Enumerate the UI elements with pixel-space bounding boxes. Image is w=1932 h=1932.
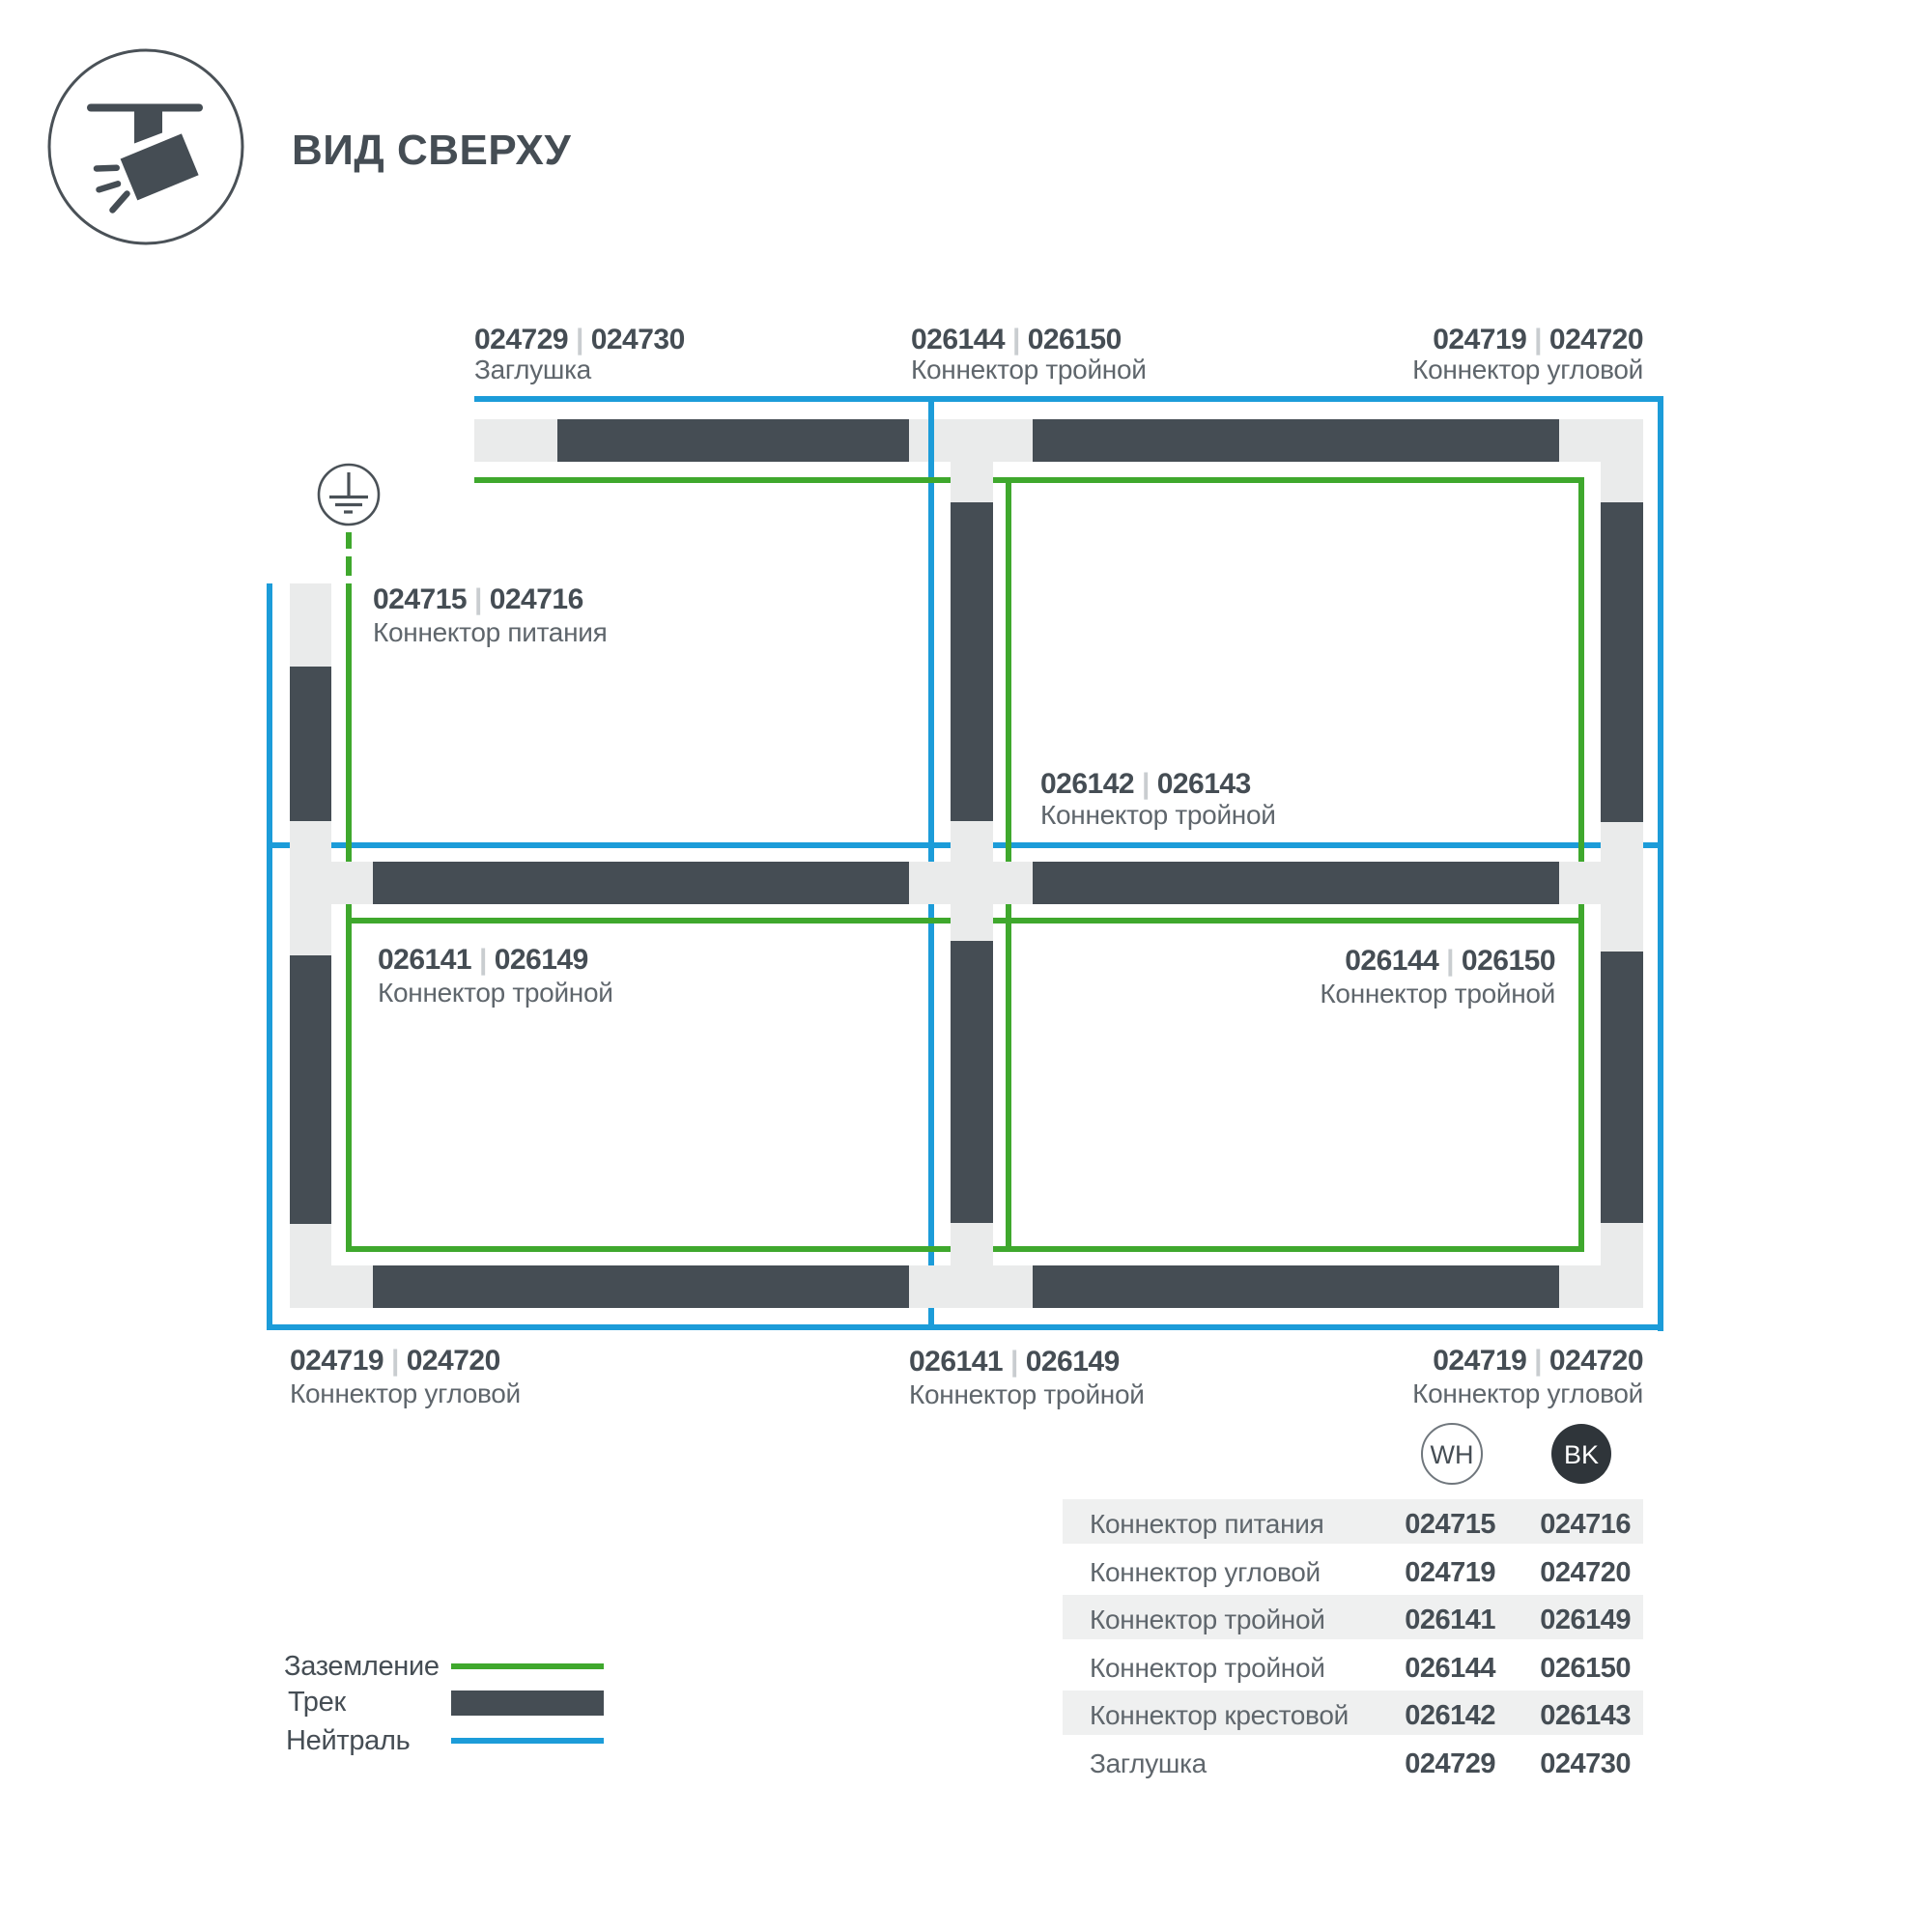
svg-text:Заглушка: Заглушка (474, 355, 592, 384)
svg-text:Коннектор угловой: Коннектор угловой (290, 1378, 521, 1408)
svg-text:Коннектор угловой: Коннектор угловой (1090, 1557, 1321, 1587)
svg-text:024729 | 024730: 024729 | 024730 (474, 324, 685, 355)
svg-text:Коннектор угловой: Коннектор угловой (1412, 355, 1643, 384)
svg-text:Коннектор тройной: Коннектор тройной (1040, 800, 1276, 830)
svg-text:024719 | 024720: 024719 | 024720 (290, 1345, 500, 1377)
svg-text:Заземление: Заземление (284, 1651, 440, 1682)
svg-text:WH: WH (1431, 1440, 1474, 1469)
svg-text:Коннектор тройной: Коннектор тройной (1090, 1653, 1325, 1683)
svg-text:026142 | 026143: 026142 | 026143 (1040, 768, 1251, 800)
svg-text:Коннектор тройной: Коннектор тройной (1090, 1605, 1325, 1634)
svg-text:Заглушка: Заглушка (1090, 1748, 1207, 1778)
svg-text:Коннектор тройной: Коннектор тройной (378, 978, 613, 1008)
svg-text:024716: 024716 (1540, 1509, 1631, 1540)
svg-text:024719: 024719 (1405, 1557, 1495, 1588)
svg-text:024715 | 024716: 024715 | 024716 (373, 583, 583, 615)
svg-text:026142: 026142 (1405, 1700, 1495, 1731)
svg-text:024720: 024720 (1540, 1557, 1631, 1588)
svg-text:Коннектор угловой: Коннектор угловой (1412, 1378, 1643, 1408)
svg-text:Коннектор питания: Коннектор питания (373, 617, 607, 647)
svg-text:026144 | 026150: 026144 | 026150 (911, 324, 1122, 355)
svg-text:Коннектор крестовой: Коннектор крестовой (1090, 1700, 1349, 1730)
svg-text:Коннектор тройной: Коннектор тройной (909, 1379, 1145, 1409)
svg-text:026141 | 026149: 026141 | 026149 (909, 1346, 1120, 1378)
svg-text:Коннектор питания: Коннектор питания (1090, 1509, 1323, 1539)
svg-text:026144 | 026150: 026144 | 026150 (1345, 945, 1555, 977)
svg-text:026141: 026141 (1405, 1605, 1495, 1635)
svg-text:ВИД СВЕРХУ: ВИД СВЕРХУ (292, 127, 571, 174)
svg-text:024729: 024729 (1405, 1748, 1495, 1779)
svg-text:026141 | 026149: 026141 | 026149 (378, 944, 588, 976)
svg-text:024715: 024715 (1405, 1509, 1495, 1540)
svg-text:Нейтраль: Нейтраль (286, 1725, 410, 1756)
svg-text:026143: 026143 (1540, 1700, 1631, 1731)
svg-text:BK: BK (1564, 1440, 1599, 1469)
svg-text:026150: 026150 (1540, 1653, 1631, 1684)
svg-text:024730: 024730 (1540, 1748, 1631, 1779)
svg-text:024719 | 024720: 024719 | 024720 (1433, 324, 1643, 355)
svg-text:026144: 026144 (1405, 1653, 1495, 1684)
svg-text:Трек: Трек (288, 1687, 346, 1718)
svg-text:024719 | 024720: 024719 | 024720 (1433, 1345, 1643, 1377)
svg-text:Коннектор тройной: Коннектор тройной (911, 355, 1147, 384)
svg-text:Коннектор тройной: Коннектор тройной (1320, 979, 1555, 1009)
svg-text:026149: 026149 (1540, 1605, 1631, 1635)
